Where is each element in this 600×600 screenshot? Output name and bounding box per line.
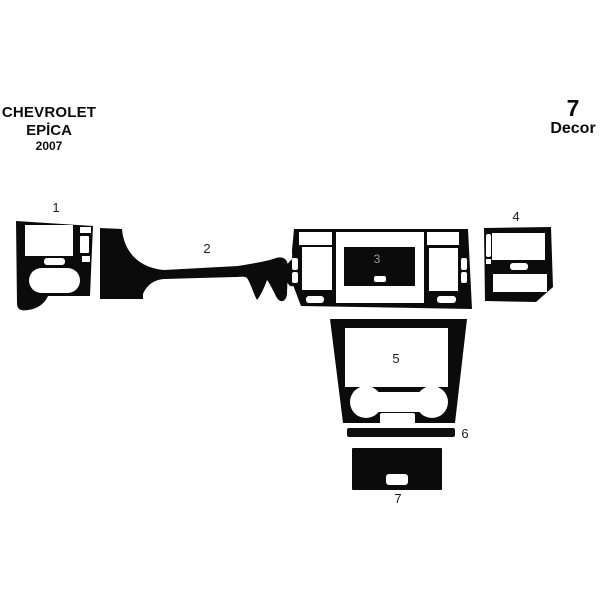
trim-piece-3-shape — [285, 229, 472, 309]
product-image: CHEVROLET EPİCA 2007 7 Decor — [0, 0, 600, 600]
dash-kit-diagram — [0, 0, 600, 600]
trim-piece-6-shape — [347, 428, 455, 437]
piece-5-number: 5 — [392, 352, 399, 365]
piece-1-number: 1 — [52, 201, 59, 214]
piece-3-number: 3 — [374, 253, 381, 266]
trim-piece-4-shape — [484, 227, 553, 302]
trim-piece-2-shape — [100, 228, 288, 301]
piece-6-number: 6 — [461, 427, 468, 440]
piece-4-number: 4 — [512, 210, 519, 223]
trim-piece-7-shape — [352, 448, 442, 490]
trim-piece-5-shape — [330, 319, 467, 424]
trim-piece-1-shape — [16, 221, 93, 310]
piece-2-number: 2 — [203, 242, 210, 255]
piece-7-number: 7 — [394, 492, 401, 505]
